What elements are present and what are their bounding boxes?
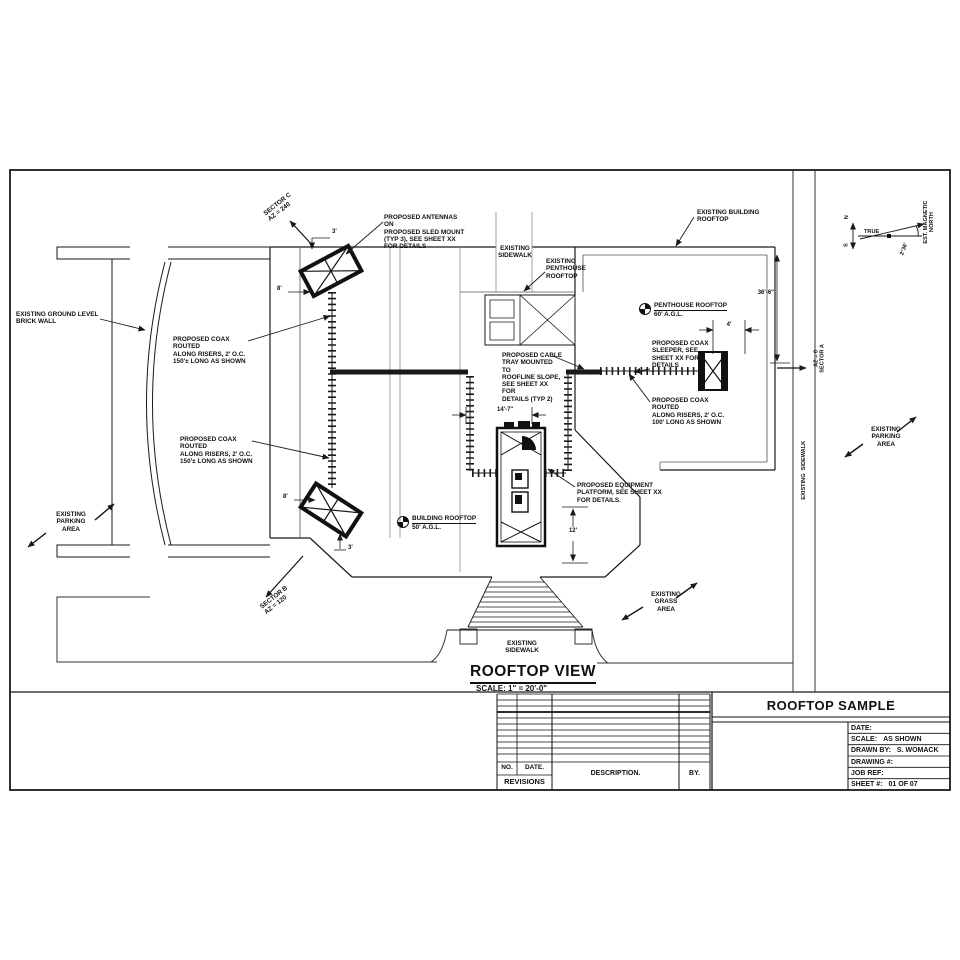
sector-a-label: AZ = 0 SECTOR A bbox=[814, 338, 827, 378]
entrance-stairs bbox=[447, 577, 592, 644]
coax-150-upper-label: PROPOSED COAX ROUTED ALONG RISERS, 2' O.… bbox=[173, 336, 255, 365]
building-elevation-symbol bbox=[398, 517, 409, 528]
revisions-col-description: DESCRIPTION. bbox=[552, 770, 679, 777]
dim-antenna-top-width: 8' bbox=[277, 286, 282, 293]
penthouse bbox=[485, 295, 575, 345]
titleblock-row-jobref: JOB REF: bbox=[851, 769, 948, 778]
titleblock-sheet-value: 01 OF 07 bbox=[889, 781, 918, 788]
drawing-sheet-page: SECTOR C AZ = 240 PROPOSED ANTENNAS ON P… bbox=[0, 0, 960, 960]
penthouse-elevation-label: PENTHOUSE ROOFTOP60' A.G.L. bbox=[654, 302, 734, 318]
dim-antenna-bottom-offset: 3' bbox=[348, 545, 353, 552]
existing-building-rooftop-label: EXISTING BUILDING ROOFTOP bbox=[697, 209, 769, 224]
equipment-platform bbox=[497, 421, 545, 546]
grass-area-label: EXISTING GRASS AREA bbox=[644, 591, 688, 613]
brick-wall-label: EXISTING GROUND LEVEL BRICK WALL bbox=[16, 311, 108, 326]
dim-roof-depth: 36'-6" bbox=[746, 290, 774, 297]
titleblock-row-drawnby: DRAWN BY: S. WOMACK bbox=[851, 746, 948, 755]
revisions-col-by: BY. bbox=[679, 770, 710, 777]
revisions-col-no: NO. bbox=[497, 764, 517, 771]
building-elevation-name: BUILDING ROOFTOP bbox=[412, 515, 476, 524]
revisions-title: REVISIONS bbox=[497, 777, 552, 786]
antenna-sled-bottom bbox=[301, 484, 362, 537]
plan-linework bbox=[0, 0, 960, 960]
building-elevation-value: 50' A.G.L. bbox=[412, 524, 441, 531]
coax-100-label: PROPOSED COAX ROUTED ALONG RISERS, 2' O.… bbox=[652, 397, 736, 426]
compass-north-label: N bbox=[844, 215, 850, 219]
compass-true-label: TRUE bbox=[864, 229, 879, 235]
coax-sleeper-label: PROPOSED COAX SLEEPER, SEE SHEET XX FOR … bbox=[652, 340, 710, 369]
compass bbox=[853, 223, 924, 249]
titleblock-sheet-label: SHEET #: bbox=[851, 781, 883, 788]
titleblock-row-drawing: DRAWING #: bbox=[851, 758, 948, 767]
proposed-antennas-label: PROPOSED ANTENNAS ON PROPOSED SLED MOUNT… bbox=[384, 214, 468, 250]
penthouse-elevation-name: PENTHOUSE ROOFTOP bbox=[654, 302, 727, 311]
building-elevation-label: BUILDING ROOFTOP50' A.G.L. bbox=[412, 515, 492, 531]
dim-platform-offset: 12' bbox=[565, 528, 581, 535]
view-title: ROOFTOP VIEW bbox=[470, 663, 596, 684]
view-scale: SCALE: 1" = 20'-0" bbox=[476, 684, 547, 693]
penthouse-elevation-value: 60' A.G.L. bbox=[654, 311, 683, 318]
coax-150-lower-label: PROPOSED COAX ROUTED ALONG RISERS, 2' O.… bbox=[180, 436, 262, 465]
titleblock-row-sheet: SHEET #: 01 OF 07 bbox=[851, 780, 948, 789]
antenna-sled-top bbox=[301, 246, 362, 296]
project-title: ROOFTOP SAMPLE bbox=[712, 698, 950, 713]
titleblock-scale-label: SCALE: bbox=[851, 736, 877, 743]
compass-south-label: S bbox=[844, 243, 850, 247]
equipment-platform-label: PROPOSED EQUIPMENT PLATFORM, SEE SHEET X… bbox=[577, 482, 669, 504]
parking-right-label: EXISTING PARKING AREA bbox=[862, 426, 910, 448]
titleblock-drawing-label: DRAWING #: bbox=[851, 759, 893, 766]
cable-tray-label: PROPOSED CABLE TRAY MOUNTED TO ROOFLINE … bbox=[502, 352, 562, 403]
parking-left-label: EXISTING PARKING AREA bbox=[47, 511, 95, 533]
sidewalk-right-label: EXISTING SIDEWALK bbox=[801, 440, 807, 500]
penthouse-elevation-symbol bbox=[640, 304, 651, 315]
titleblock-row-date: DATE: bbox=[851, 724, 948, 733]
sheet-border bbox=[10, 170, 950, 790]
compass-magnetic-label: EST. MAGNETIC NORTH bbox=[923, 197, 937, 247]
titleblock-row-scale: SCALE: AS SHOWN bbox=[851, 735, 948, 744]
revisions-col-date: DATE. bbox=[517, 764, 552, 771]
existing-sidewalk-top-label: EXISTING SIDEWALK bbox=[497, 245, 533, 260]
titleblock-jobref-label: JOB REF: bbox=[851, 770, 884, 777]
dim-antenna-top-offset: 3' bbox=[332, 229, 337, 236]
dim-sleeper-offset: 4' bbox=[717, 322, 741, 329]
sector-c-arrow bbox=[290, 221, 314, 247]
titleblock-drawnby-label: DRAWN BY: bbox=[851, 747, 891, 754]
dim-antenna-bottom-width: 8' bbox=[283, 494, 288, 501]
sidewalk-bottom-label: EXISTING SIDEWALK bbox=[498, 640, 546, 655]
titleblock-date-label: DATE: bbox=[851, 725, 872, 732]
titleblock-scale-value: AS SHOWN bbox=[883, 736, 922, 743]
existing-penthouse-rooftop-label: EXISTING PENTHOUSE ROOFTOP bbox=[546, 258, 590, 280]
dim-tray-span: 14'-7" bbox=[497, 407, 513, 414]
titleblock-drawnby-value: S. WOMACK bbox=[897, 747, 939, 754]
